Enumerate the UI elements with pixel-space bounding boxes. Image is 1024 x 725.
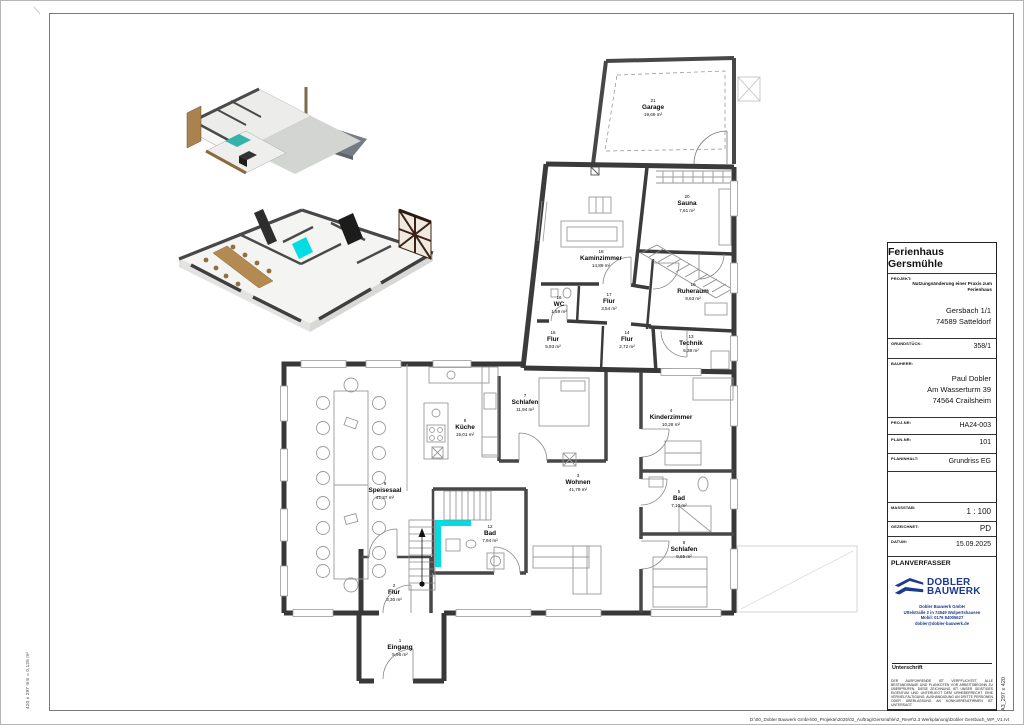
room-label: 11,94 m² <box>516 407 534 412</box>
gezeichnet-value: PD <box>980 524 991 533</box>
wing-furniture <box>551 171 731 369</box>
wing-windows <box>538 181 738 361</box>
company-logo: DOBLER BAUWERK <box>894 572 992 602</box>
grundstueck-value: 358/1 <box>973 343 991 350</box>
room-label: 20 <box>684 194 690 199</box>
room-label: Flur <box>388 589 401 596</box>
logo-roof-icon <box>894 576 924 598</box>
room-label: 5,38 m² <box>683 348 699 353</box>
sheet-size-note-left: 420 x 297 mm = 0,125 m² <box>25 587 30 709</box>
room-label: 9,65 m² <box>676 554 692 559</box>
planinhalt-row: PLANINHALT: Grundriss EG <box>888 454 996 472</box>
bauherr-label: BAUHERR: <box>891 361 913 366</box>
room-label: Flur <box>603 298 616 305</box>
room-label: Kaminzimmer <box>580 255 622 262</box>
room-label: Bad <box>673 495 685 502</box>
room-label: 3,54 m² <box>601 306 617 311</box>
room-label: 7,61 m² <box>679 208 695 213</box>
room-label: 18 <box>598 249 604 254</box>
sheet-size-note-right: A3_297 x 420 <box>1001 619 1007 711</box>
file-path: D:\00_Dobler Bauwerk GmbH\00_Projekte\20… <box>750 717 1009 722</box>
grundstueck-row: GRUNDSTÜCK: 358/1 <box>888 339 996 359</box>
room-label: 15 <box>550 330 556 335</box>
room-label: 8 <box>464 418 467 423</box>
room-labels: 21 Garage 19,69 m² 20 Sauna 7,61 m² 18 K… <box>368 98 709 657</box>
room-label: Technik <box>679 340 703 347</box>
room-label: Schlafen <box>512 399 539 406</box>
signature-line: Unterschrift <box>892 663 992 671</box>
room-label: 7 <box>524 393 527 398</box>
room-label: Flur <box>547 336 560 343</box>
planverfasser-label: PLANVERFASSER <box>891 560 951 567</box>
room-label: Sauna <box>677 200 697 207</box>
gezeichnet-label: GEZEICHNET: <box>891 524 919 529</box>
room-label: Speisesaal <box>368 487 401 494</box>
room-label: 12 <box>487 524 493 529</box>
project-address-line1: Gersbach 1/1 <box>946 306 991 315</box>
room-label: 5,93 m² <box>545 344 561 349</box>
garage-door-arc <box>694 131 727 164</box>
room-label: 21 <box>650 98 656 103</box>
planinhalt-value: Grundriss EG <box>949 458 991 465</box>
fold-mark <box>34 7 40 14</box>
main-walls-exterior <box>284 364 734 681</box>
plan-canvas: 21 Garage 19,69 m² 20 Sauna 7,61 m² 18 K… <box>1 1 1024 725</box>
plan-title: Ferienhaus Gersmühle <box>888 243 996 274</box>
room-label: Wohnen <box>565 479 590 486</box>
projnr-value: HA24-003 <box>959 422 991 429</box>
bauherr-street: Am Wasserturm 39 <box>927 385 991 394</box>
room-label: 1,59 m² <box>551 309 567 314</box>
room-label: 16 <box>556 295 562 300</box>
room-label: 17 <box>606 292 612 297</box>
room-label: 41,79 m² <box>569 487 588 492</box>
massstab-label: MASSSTAB: <box>891 505 915 510</box>
room-label: 14,89 m² <box>592 263 611 268</box>
room-label: 9 <box>384 481 387 486</box>
garage <box>591 58 760 175</box>
room-label: 19 <box>690 282 696 287</box>
room-label: Kinderzimmer <box>650 414 693 421</box>
planinhalt-label: PLANINHALT: <box>891 456 918 461</box>
room-label: 9,63 m² <box>685 296 701 301</box>
terrace-line <box>741 551 853 609</box>
main-stairs <box>409 491 491 590</box>
datum-value: 15.09.2025 <box>956 541 991 548</box>
plannr-row: PLAN-NR: 101 <box>888 435 996 454</box>
room-label: 2 <box>393 583 396 588</box>
room-label: Eingang <box>387 644 412 651</box>
company-email: dobler@dobler-bauwerk.de <box>888 621 996 627</box>
room-label: Ruheraum <box>677 288 709 295</box>
room-label: 41,37 m² <box>376 495 395 500</box>
projekt-value: Nutzungsänderung einer Praxis zum Ferien… <box>894 281 992 292</box>
empty-row <box>888 472 996 503</box>
grundstueck-label: GRUNDSTÜCK: <box>891 341 922 346</box>
room-label: Flur <box>621 336 634 343</box>
projnr-label: PROJ-NR: <box>891 420 911 425</box>
room-label: 5,96 m² <box>392 652 408 657</box>
room-label: Bad <box>484 530 496 537</box>
room-label: 4 <box>670 408 673 413</box>
plannr-value: 101 <box>979 439 991 446</box>
room-label: 13 <box>688 334 694 339</box>
datum-row: DATUM: 15.09.2025 <box>888 537 996 557</box>
wood-wall-1 <box>187 106 201 148</box>
company-details: Dobler Bauwerk GmbH Uttelstraße 2 in 745… <box>888 604 996 627</box>
bauherr-name: Paul Dobler <box>952 374 991 383</box>
logo-text-line2: BAUWERK <box>927 587 981 597</box>
projnr-row: PROJ-NR: HA24-003 <box>888 418 996 435</box>
room-label: 3 <box>577 473 580 478</box>
title-block: Ferienhaus Gersmühle PROJEKT: Nutzungsän… <box>887 242 997 711</box>
room-label: Schlafen <box>671 546 698 553</box>
projekt-row: PROJEKT: Nutzungsänderung einer Praxis z… <box>888 274 996 339</box>
room-label: 3,30 m² <box>386 597 402 602</box>
room-label: 7,94 m² <box>482 538 498 543</box>
isometric-3d-view <box>179 87 433 332</box>
bauherr-city: 74564 Crailsheim <box>933 396 991 405</box>
room-label: WC <box>554 301 565 308</box>
datum-label: DATUM: <box>891 539 907 544</box>
room-label: 5 <box>678 489 681 494</box>
room-label: 2,72 m² <box>619 344 635 349</box>
floor-plan <box>281 58 858 681</box>
project-address-line2: 74589 Satteldorf <box>936 317 991 326</box>
drawing-sheet: 21 Garage 19,69 m² 20 Sauna 7,61 m² 18 K… <box>0 0 1024 725</box>
massstab-value: 1 : 100 <box>967 507 991 516</box>
room-label: 7,10 m² <box>671 503 687 508</box>
planverfasser-section: PLANVERFASSER DOBLER BAUWERK Dobler Bauw… <box>888 557 996 710</box>
room-label: 1 <box>399 638 402 643</box>
massstab-row: MASSSTAB: 1 : 100 <box>888 503 996 522</box>
room-label: 15,01 m² <box>456 432 475 437</box>
room-label: 6 <box>683 540 686 545</box>
bauherr-row: BAUHERR: Paul Dobler Am Wasserturm 39 74… <box>888 359 996 418</box>
room-label: Küche <box>455 424 475 431</box>
room-label: Garage <box>642 104 664 111</box>
legal-disclaimer: DER AUSFÜHRENDE IST VERPFLICHTET, ALLE B… <box>891 679 993 708</box>
room-label: 10,28 m² <box>662 422 681 427</box>
room-label: 14 <box>624 330 630 335</box>
room-label: 19,69 m² <box>644 112 663 117</box>
plannr-label: PLAN-NR: <box>891 437 911 442</box>
gezeichnet-row: GEZEICHNET: PD <box>888 522 996 537</box>
